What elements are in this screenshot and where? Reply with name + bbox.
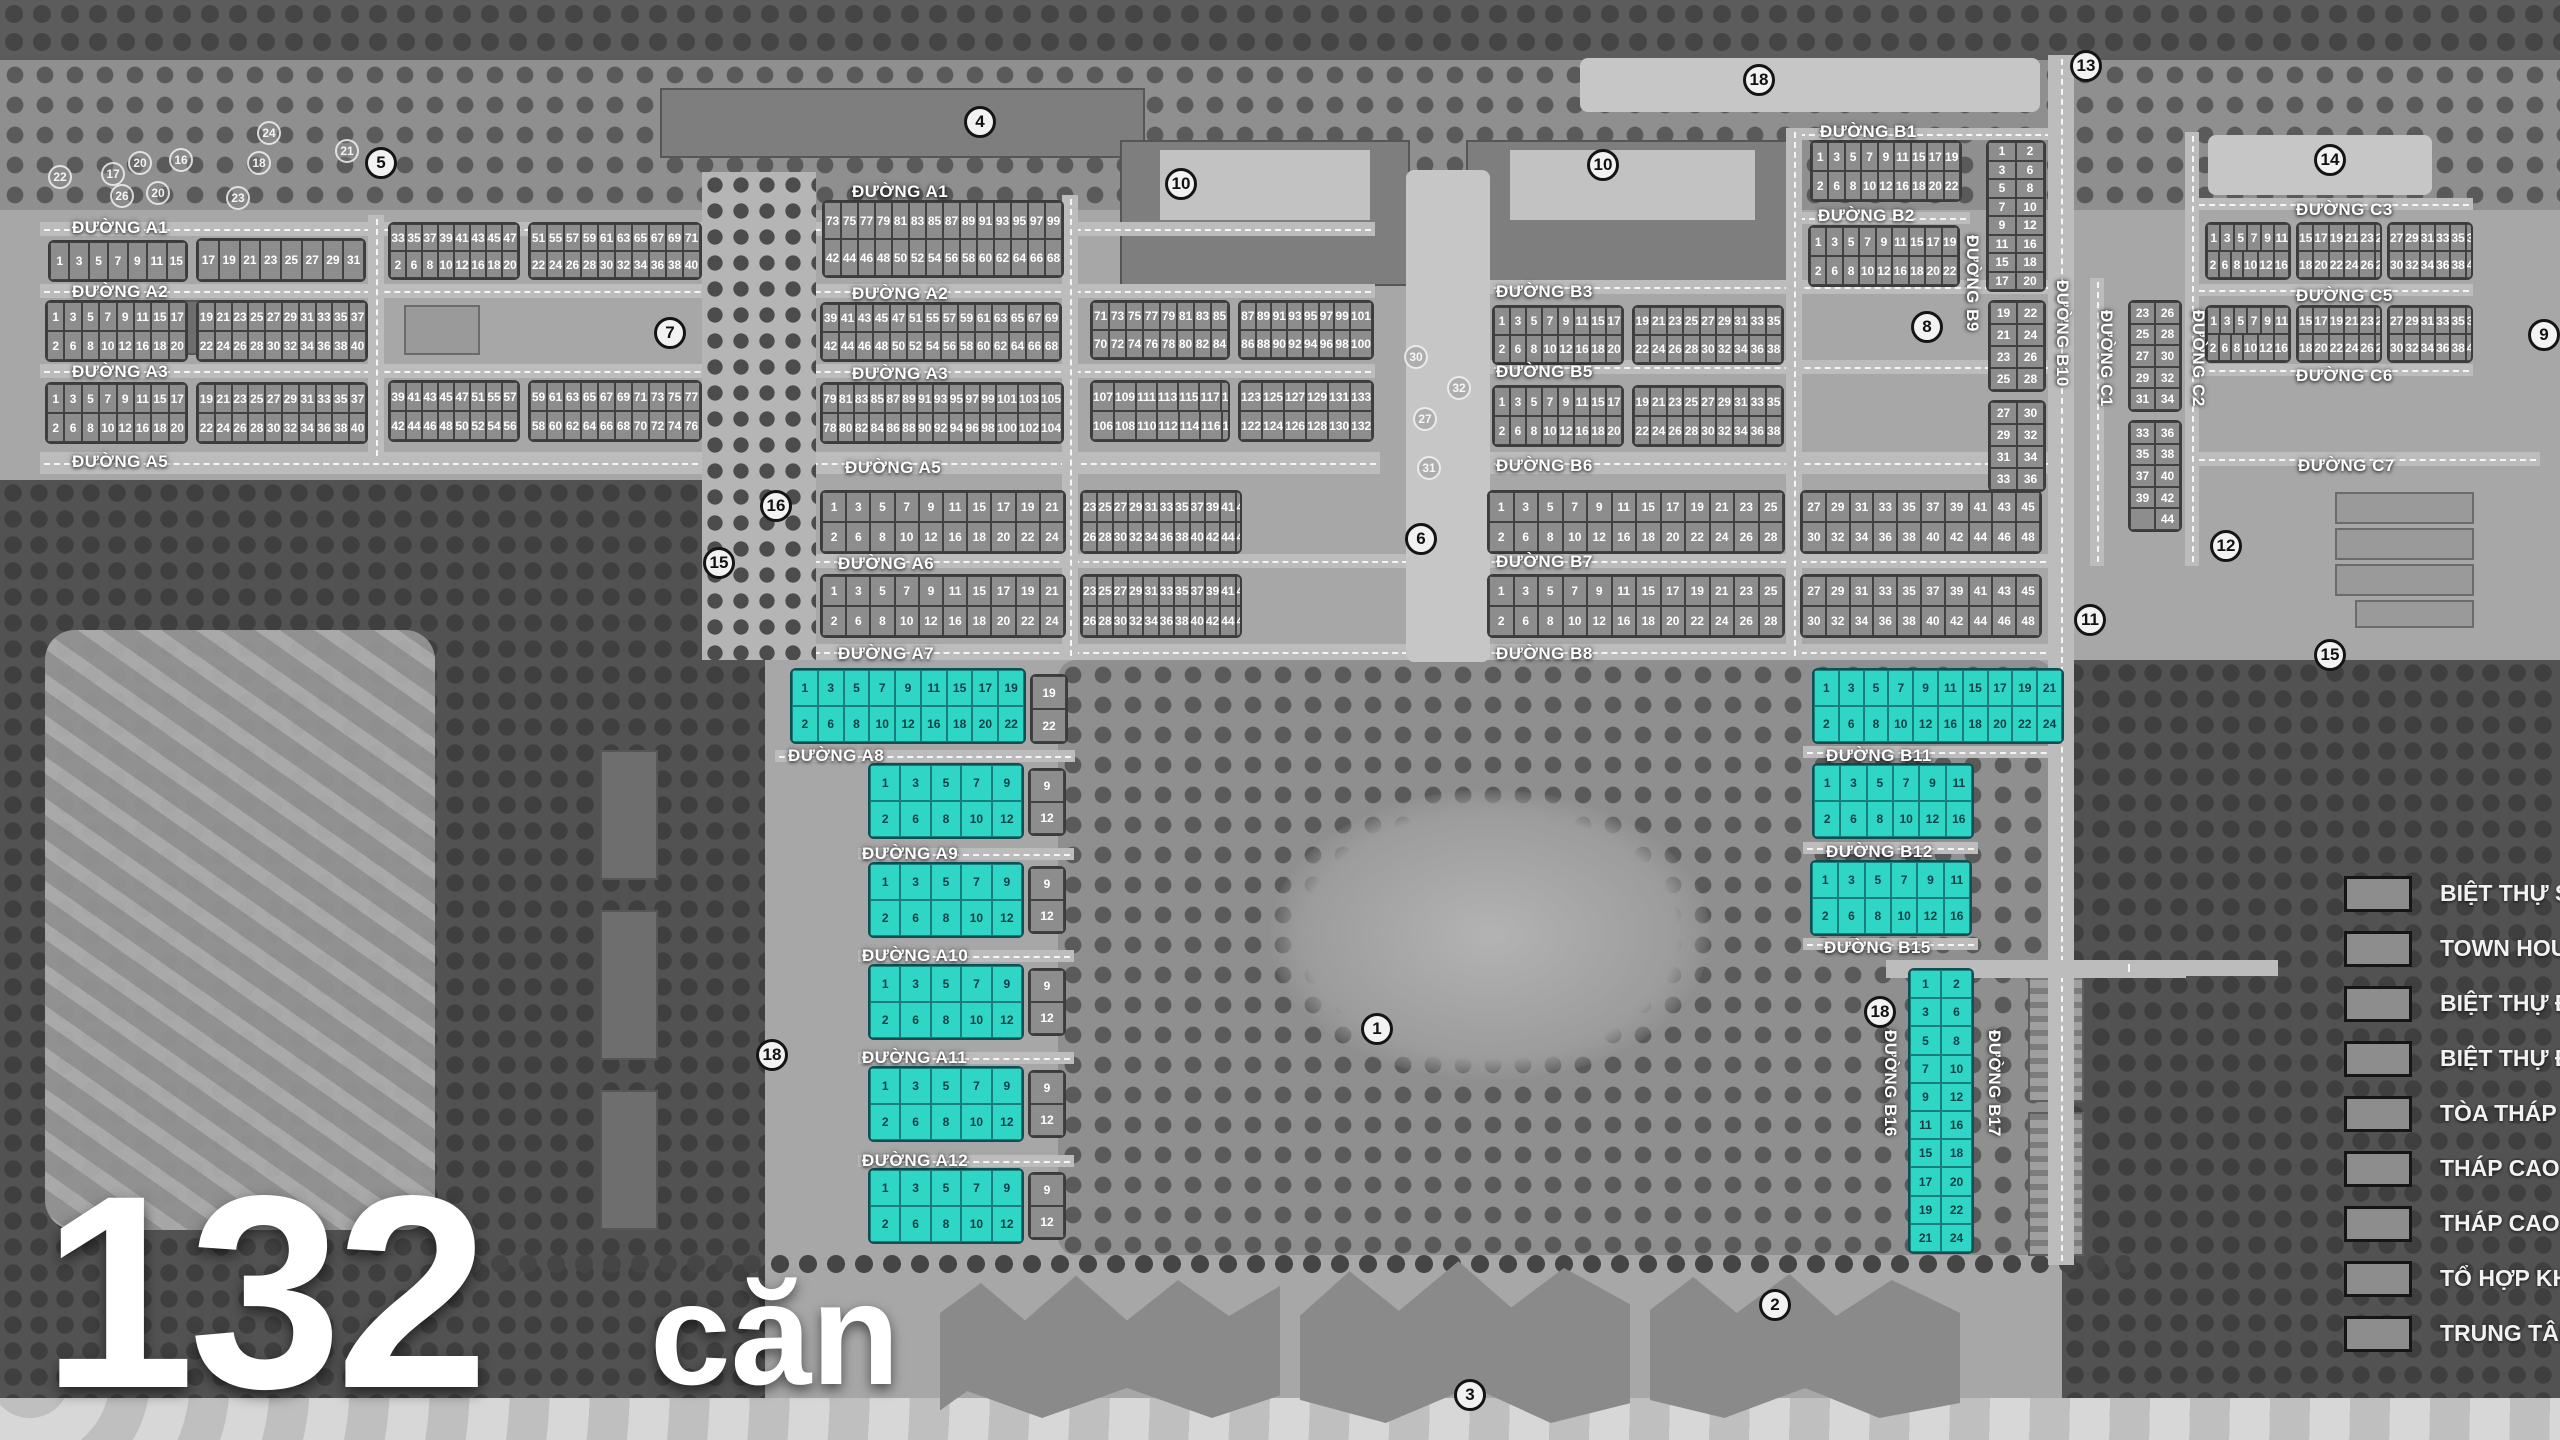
highlighted-lot[interactable]: 7 [869, 670, 895, 706]
lot-block: 135791115172681012161820 [45, 382, 188, 444]
highlighted-lot[interactable]: 16 [1944, 898, 1970, 934]
lot: 19 [1990, 302, 2017, 324]
lot-row: 106108110112114116118120 [1092, 411, 1228, 440]
highlighted-lot[interactable]: 12 [1913, 706, 1938, 742]
highlighted-lot[interactable]: 7 [961, 864, 991, 900]
lot: 21 [215, 302, 232, 331]
lot-row: 9 [1030, 1174, 1064, 1206]
highlighted-lot[interactable]: 6 [900, 801, 930, 837]
highlighted-lot[interactable]: 3 [1840, 765, 1866, 801]
highlighted-lot[interactable]: 5 [931, 1068, 961, 1104]
lot: 17 [1661, 576, 1686, 606]
lot: 24 [1650, 416, 1666, 445]
highlighted-lot[interactable]: 9 [1917, 862, 1943, 898]
highlighted-lot[interactable]: 3 [1910, 998, 1941, 1026]
lot: 72 [649, 411, 666, 440]
lot: 12 [117, 331, 134, 360]
highlighted-lot[interactable]: 3 [1838, 862, 1864, 898]
highlighted-lot[interactable]: 5 [1910, 1026, 1941, 1054]
lot-row: 9 [1030, 868, 1064, 900]
highlighted-lot[interactable]: 6 [1838, 898, 1864, 934]
lot: 37 [1921, 576, 1945, 606]
map-marker: 10 [1587, 149, 1619, 181]
lot: 5 [870, 576, 894, 606]
highlighted-lot[interactable]: 2 [1812, 898, 1838, 934]
lot: 38 [1766, 335, 1782, 363]
highlighted-lot[interactable]: 3 [1839, 670, 1864, 706]
highlighted-lot[interactable]: 7 [961, 765, 991, 801]
highlighted-lot[interactable]: 22 [2012, 706, 2037, 742]
lot: 18 [2298, 251, 2313, 278]
highlighted-lot[interactable]: 8 [931, 1206, 961, 1242]
lot: 67 [598, 382, 615, 411]
lot: 35 [1174, 492, 1189, 522]
highlighted-lot[interactable]: 11 [1910, 1111, 1941, 1139]
highlighted-lot[interactable]: 7 [961, 966, 991, 1002]
lot: 20 [991, 606, 1015, 636]
lot: 29 [1826, 492, 1850, 522]
highlighted-lot[interactable]: 5 [844, 670, 870, 706]
highlighted-lot[interactable]: 1 [1910, 970, 1941, 998]
highlighted-lot[interactable]: 11 [921, 670, 947, 706]
highlighted-lot[interactable]: 5 [931, 765, 961, 801]
highlighted-lot[interactable]: 2 [870, 1002, 900, 1038]
highlighted-lot[interactable]: 1 [870, 966, 900, 1002]
lot: 7 [1861, 142, 1877, 171]
lot: 32 [615, 251, 632, 278]
lot: 11 [134, 384, 151, 413]
lot: 15 [151, 302, 168, 331]
lot: 47 [890, 304, 907, 332]
lot: 19 [198, 384, 215, 413]
lot: 34 [299, 331, 316, 360]
lot: 81 [892, 202, 909, 239]
highlighted-lot[interactable]: 12 [1941, 1083, 1972, 1111]
lot: 84 [1211, 330, 1228, 358]
lot-row: 2681012161820 [47, 331, 186, 360]
highlighted-lot[interactable]: 1 [1814, 670, 1839, 706]
lot: 33 [1990, 468, 2017, 490]
lot: 1 [47, 302, 64, 331]
lot: 15 [1988, 253, 2016, 272]
highlighted-lot[interactable]: 3 [818, 670, 844, 706]
highlighted-lot[interactable]: 10 [1941, 1055, 1972, 1083]
highlighted-lot[interactable]: 17 [972, 670, 998, 706]
highlighted-lot[interactable]: 5 [931, 966, 961, 1002]
highlighted-lot[interactable]: 5 [931, 864, 961, 900]
street-label: ĐƯỜNG C5 [2296, 286, 2393, 306]
highlighted-lot[interactable]: 10 [961, 801, 991, 837]
highlighted-lot[interactable]: 18 [947, 706, 973, 742]
highlighted-lot[interactable]: 21 [1910, 1224, 1941, 1252]
highlighted-lot[interactable]: 17 [1988, 670, 2013, 706]
highlighted-lot[interactable]: 6 [818, 706, 844, 742]
highlighted-lot[interactable]: 1 [870, 765, 900, 801]
lot: 38 [2155, 444, 2180, 466]
lot: 20 [1606, 416, 1622, 445]
lot: 44 [2155, 508, 2180, 530]
legend-swatch [2344, 986, 2412, 1022]
highlighted-lot[interactable]: 2 [1814, 706, 1839, 742]
highlighted-lot[interactable]: 6 [900, 1002, 930, 1038]
highlighted-lot[interactable]: 10 [961, 1206, 991, 1242]
lot: 15 [167, 242, 186, 280]
lot-row: 303234363840 [2389, 251, 2471, 278]
highlighted-lot[interactable]: 7 [1888, 670, 1913, 706]
street-label: ĐƯỜNG A2 [72, 282, 168, 302]
lot: 6 [1514, 522, 1539, 552]
lot: 40 [2155, 465, 2180, 487]
highlighted-lot[interactable]: 8 [1867, 801, 1893, 837]
lot: 97 [1319, 302, 1335, 330]
lot-row: 2681012 [870, 900, 1022, 936]
highlighted-lot[interactable]: 9 [992, 1068, 1022, 1104]
highlighted-lot[interactable]: 20 [972, 706, 998, 742]
highlighted-lot[interactable]: 1 [792, 670, 818, 706]
lot: 50 [454, 411, 470, 440]
lot: 5 [2234, 307, 2247, 334]
highlighted-lot[interactable]: 19 [998, 670, 1024, 706]
highlighted-lot[interactable]: 9 [992, 966, 1022, 1002]
apartment-slab-2 [2335, 528, 2474, 560]
highlighted-lot[interactable]: 5 [1864, 670, 1889, 706]
legend-item: TỔ HỢP KHA [2344, 1251, 2560, 1306]
lot: 56 [502, 411, 518, 440]
lot: 27 [1700, 307, 1716, 335]
highlighted-lot[interactable]: 1 [870, 864, 900, 900]
highlighted-lot[interactable]: 7 [1891, 862, 1917, 898]
lot-row: 22242628303234363840 [198, 413, 366, 442]
highlighted-lot[interactable]: 8 [931, 1002, 961, 1038]
lot: 27 [1113, 576, 1128, 606]
lot: 106 [1092, 411, 1114, 440]
lot: 7 [1859, 227, 1875, 256]
highlighted-lot[interactable]: 8 [931, 801, 961, 837]
highlighted-lot[interactable]: 5 [1867, 765, 1893, 801]
lot: 59 [581, 224, 598, 251]
lot: 30 [1113, 522, 1128, 552]
lot: 5 [1988, 179, 2016, 198]
lot: 2 [1489, 522, 1514, 552]
lot: 24 [1710, 606, 1735, 636]
lot: 9 [2261, 307, 2274, 334]
lot: 36 [2155, 422, 2180, 444]
highlighted-lot[interactable]: 16 [921, 706, 947, 742]
lot: 43 [1236, 492, 1242, 522]
lot: 29 [282, 302, 299, 331]
map-marker-faint: 20 [128, 151, 152, 175]
lot: 12 [1030, 1206, 1064, 1238]
highlighted-lot[interactable]: 20 [1941, 1167, 1972, 1195]
lot-block: 912 [1028, 1172, 1066, 1240]
highlighted-lot[interactable]: 11 [1944, 862, 1970, 898]
lot: 40 [683, 251, 700, 278]
highlighted-lot[interactable]: 12 [992, 1002, 1022, 1038]
highlighted-lot[interactable]: 1 [870, 1170, 900, 1206]
street-label: ĐƯỜNG C1 [2096, 310, 2116, 407]
lot: 34 [1143, 606, 1158, 636]
highlighted-lot[interactable]: 8 [931, 1104, 961, 1140]
lot: 8 [1538, 606, 1563, 636]
highlighted-lot[interactable]: 6 [1839, 706, 1864, 742]
highlighted-lot[interactable]: 12 [1919, 801, 1945, 837]
lot: 68 [1043, 332, 1060, 360]
lot: 20 [169, 331, 186, 360]
highlighted-lot[interactable]: 2 [870, 900, 900, 936]
lot-row: 27293133353739414345 [1802, 576, 2040, 606]
highlighted-lot[interactable]: 10 [1893, 801, 1919, 837]
lot: 3 [64, 384, 81, 413]
lot-block: 1357911151719212325268101216182022242628 [1487, 490, 1785, 554]
map-marker: 4 [964, 106, 996, 138]
highlighted-lot[interactable]: 2 [870, 1104, 900, 1140]
lot: 42 [1945, 522, 1969, 552]
lot-block: 135791115172681012161820 [45, 300, 188, 362]
lot: 33 [2130, 422, 2155, 444]
lot: 28 [581, 251, 598, 278]
lot-row: 2124 [1910, 1224, 1972, 1252]
highlighted-lot[interactable]: 7 [961, 1170, 991, 1206]
lot: 42 [2155, 487, 2180, 509]
highlighted-lot[interactable]: 10 [961, 1104, 991, 1140]
highlighted-lot[interactable]: 12 [992, 1104, 1022, 1140]
highlighted-lot[interactable]: 8 [844, 706, 870, 742]
lot: 7 [895, 492, 919, 522]
street-label: ĐƯỜNG A7 [838, 644, 934, 664]
highlighted-lot[interactable]: 3 [900, 1170, 930, 1206]
highlighted-lot[interactable]: 8 [1864, 706, 1889, 742]
highlighted-lot[interactable]: 9 [1910, 1083, 1941, 1111]
lot: 2 [1489, 606, 1514, 636]
lot: 135 [1372, 382, 1374, 411]
lot: 19 [1016, 492, 1040, 522]
highlighted-lot[interactable]: 10 [1888, 706, 1913, 742]
lot: 10 [2243, 251, 2258, 278]
highlighted-lot[interactable]: 9 [992, 765, 1022, 801]
highlighted-lot[interactable]: 3 [900, 1068, 930, 1104]
highlighted-lot[interactable]: 15 [947, 670, 973, 706]
lot: 6 [2219, 251, 2231, 278]
lot: 44 [841, 239, 858, 276]
highlighted-lot[interactable]: 10 [1891, 898, 1917, 934]
highlighted-lot[interactable]: 7 [961, 1068, 991, 1104]
highlighted-lot[interactable]: 24 [1941, 1224, 1972, 1252]
lot-block: 151719212325182022242628 [2296, 305, 2382, 363]
highlighted-lot[interactable]: 2 [792, 706, 818, 742]
highlighted-lot[interactable]: 3 [900, 864, 930, 900]
lot: 51 [470, 382, 486, 411]
highlighted-lot[interactable]: 7 [1893, 765, 1919, 801]
lot: 12 [454, 251, 470, 278]
lot: 26 [232, 331, 249, 360]
lot-row: 58 [1910, 1026, 1972, 1054]
lot-row: 13579111517 [47, 302, 186, 331]
lot-block: 2730293231343336 [1988, 400, 2046, 492]
highlighted-lot[interactable]: 2 [870, 1206, 900, 1242]
lot: 30 [1802, 606, 1826, 636]
highlighted-lot[interactable]: 10 [961, 1002, 991, 1038]
lot: 5 [82, 302, 99, 331]
lot: 17 [198, 240, 219, 280]
highlighted-lot[interactable]: 3 [900, 765, 930, 801]
highlighted-lot[interactable]: 24 [2037, 706, 2062, 742]
highlighted-lot[interactable]: 1 [1814, 765, 1840, 801]
highlighted-lot[interactable]: 9 [1919, 765, 1945, 801]
legend-item: TOWN HOU [2344, 921, 2560, 976]
lot: 68 [1045, 239, 1062, 276]
lot: 3 [69, 242, 88, 280]
lot: 31 [1990, 446, 2017, 468]
highlighted-lot[interactable]: 19 [2012, 670, 2037, 706]
lot-row: 26810121618202224 [822, 606, 1064, 636]
lot: 82 [854, 413, 870, 442]
lot-block: 1922 [1030, 674, 1068, 744]
highlighted-lot[interactable]: 21 [2037, 670, 2062, 706]
highlighted-lot[interactable]: 6 [900, 1206, 930, 1242]
lot: 34 [1733, 416, 1749, 445]
highlighted-lot[interactable]: 1 [1812, 862, 1838, 898]
lot-block: 272931333537303234363840 [2387, 222, 2473, 280]
lot: 100 [996, 413, 1018, 442]
street-label: ĐƯỜNG A12 [862, 1151, 968, 1171]
west-service-building-1 [600, 750, 658, 880]
highlighted-lot[interactable]: 20 [1988, 706, 2013, 742]
highlighted-lot[interactable]: 9 [895, 670, 921, 706]
lot: 79 [875, 202, 892, 239]
highlighted-lot[interactable]: 5 [1865, 862, 1891, 898]
lot: 23 [1667, 307, 1683, 335]
lot: 58 [530, 411, 547, 440]
map-marker: 18 [1743, 64, 1775, 96]
highlighted-lot[interactable]: 5 [931, 1170, 961, 1206]
legend-swatch [2344, 1151, 2412, 1187]
highlighted-lot[interactable]: 10 [869, 706, 895, 742]
lot: 33 [316, 302, 333, 331]
lot: 6 [64, 413, 81, 442]
highlighted-lot[interactable]: 12 [992, 900, 1022, 936]
lot-block: 39414345475155574244464850525456 [388, 380, 520, 442]
lot-block: 135791115172681012161820 [1492, 305, 1624, 365]
lot: 41 [454, 224, 470, 251]
lot: 22 [2329, 334, 2344, 361]
highlighted-lot[interactable]: 12 [895, 706, 921, 742]
map-marker-faint: 18 [247, 151, 271, 175]
highlighted-lot[interactable]: 16 [1941, 1111, 1972, 1139]
highlighted-lot[interactable]: 7 [1910, 1055, 1941, 1083]
highlighted-lot[interactable]: 2 [870, 801, 900, 837]
lot: 2 [47, 331, 64, 360]
highlighted-lot[interactable]: 18 [1941, 1139, 1972, 1167]
highlighted-lot[interactable]: 22 [998, 706, 1024, 742]
map-marker-faint: 21 [335, 139, 359, 163]
highlighted-lot[interactable]: 8 [1941, 1026, 1972, 1054]
lot: 35 [406, 224, 422, 251]
lot: 30 [265, 331, 282, 360]
lot: 38 [1766, 416, 1782, 445]
highlighted-lot[interactable]: 19 [1910, 1196, 1941, 1224]
lot: 45 [2016, 576, 2040, 606]
lot: 41 [1220, 576, 1235, 606]
highlighted-lot[interactable]: 22 [1941, 1196, 1972, 1224]
lot-row: 912 [1988, 216, 2044, 235]
lot-row: 2681012161820 [1494, 416, 1622, 445]
highlighted-lot[interactable]: 15 [1963, 670, 1988, 706]
map-marker: 15 [703, 547, 735, 579]
lot: 6 [846, 606, 870, 636]
lot: 36 [1159, 606, 1174, 636]
highlighted-lot[interactable]: 9 [992, 1170, 1022, 1206]
highlighted-lot[interactable]: 12 [992, 1206, 1022, 1242]
highlighted-lot[interactable]: 2 [1941, 970, 1972, 998]
street-label: ĐƯỜNG B3 [1496, 282, 1593, 302]
map-marker-faint: 27 [1413, 407, 1437, 431]
highlighted-lot-block: 13579111517192126810121618202224 [1812, 668, 2064, 744]
street-label: ĐƯỜNG B1 [1820, 122, 1917, 142]
lot: 34 [2420, 251, 2435, 278]
lot: 9 [2261, 224, 2274, 251]
lot-row: 1518 [1910, 1139, 1972, 1167]
highlighted-lot[interactable]: 3 [900, 966, 930, 1002]
highlighted-lot[interactable]: 2 [1814, 801, 1840, 837]
lot: 12 [1878, 171, 1894, 200]
lot: 46 [1236, 522, 1242, 552]
lot-row: 1719212325272931 [198, 240, 364, 280]
highlighted-lot[interactable]: 12 [992, 801, 1022, 837]
highlighted-lot[interactable]: 17 [1910, 1167, 1941, 1195]
lot: 73 [649, 382, 666, 411]
lot: 33 [1159, 492, 1174, 522]
highlighted-lot[interactable]: 6 [1840, 801, 1866, 837]
lot-block: 333635383740394244 [2128, 420, 2182, 532]
highlighted-lot[interactable]: 12 [1917, 898, 1943, 934]
highlighted-lot[interactable]: 8 [1865, 898, 1891, 934]
highlighted-lot[interactable]: 9 [992, 864, 1022, 900]
highlighted-lot[interactable]: 15 [1910, 1139, 1941, 1167]
highlighted-lot[interactable]: 16 [1938, 706, 1963, 742]
highlighted-lot[interactable]: 1 [870, 1068, 900, 1104]
highlighted-lot[interactable]: 6 [1941, 998, 1972, 1026]
lot: 8 [1526, 335, 1542, 363]
lot: 16 [1612, 606, 1637, 636]
lot: 37 [2130, 465, 2155, 487]
lot: 16 [1574, 335, 1590, 363]
highlighted-lot[interactable]: 9 [1913, 670, 1938, 706]
lot: 8 [422, 251, 438, 278]
highlighted-lot[interactable]: 10 [961, 900, 991, 936]
lot: 95 [949, 384, 965, 413]
lot: 23 [1082, 492, 1097, 522]
highlighted-lot[interactable]: 6 [900, 900, 930, 936]
lot-row: 2628303234363840424446 [1082, 606, 1240, 636]
lot: 20 [1925, 256, 1941, 285]
lot: 75 [841, 202, 858, 239]
highlighted-lot[interactable]: 18 [1963, 706, 1988, 742]
highlighted-lot[interactable]: 16 [1946, 801, 1972, 837]
lot: 12 [2258, 251, 2273, 278]
lot-row: 710 [1988, 198, 2044, 217]
lot: 67 [649, 224, 666, 251]
lot-row: 2326 [2130, 302, 2180, 324]
highlighted-lot[interactable]: 11 [1938, 670, 1963, 706]
highlighted-lot[interactable]: 11 [1946, 765, 1972, 801]
lot: 15 [967, 576, 991, 606]
lot-row: 3538 [2130, 444, 2180, 466]
highlighted-lot[interactable]: 8 [931, 900, 961, 936]
highlighted-lot[interactable]: 6 [900, 1104, 930, 1140]
lot: 79 [822, 384, 838, 413]
lot-row: 9 [1030, 970, 1064, 1002]
lot: 86 [885, 413, 901, 442]
